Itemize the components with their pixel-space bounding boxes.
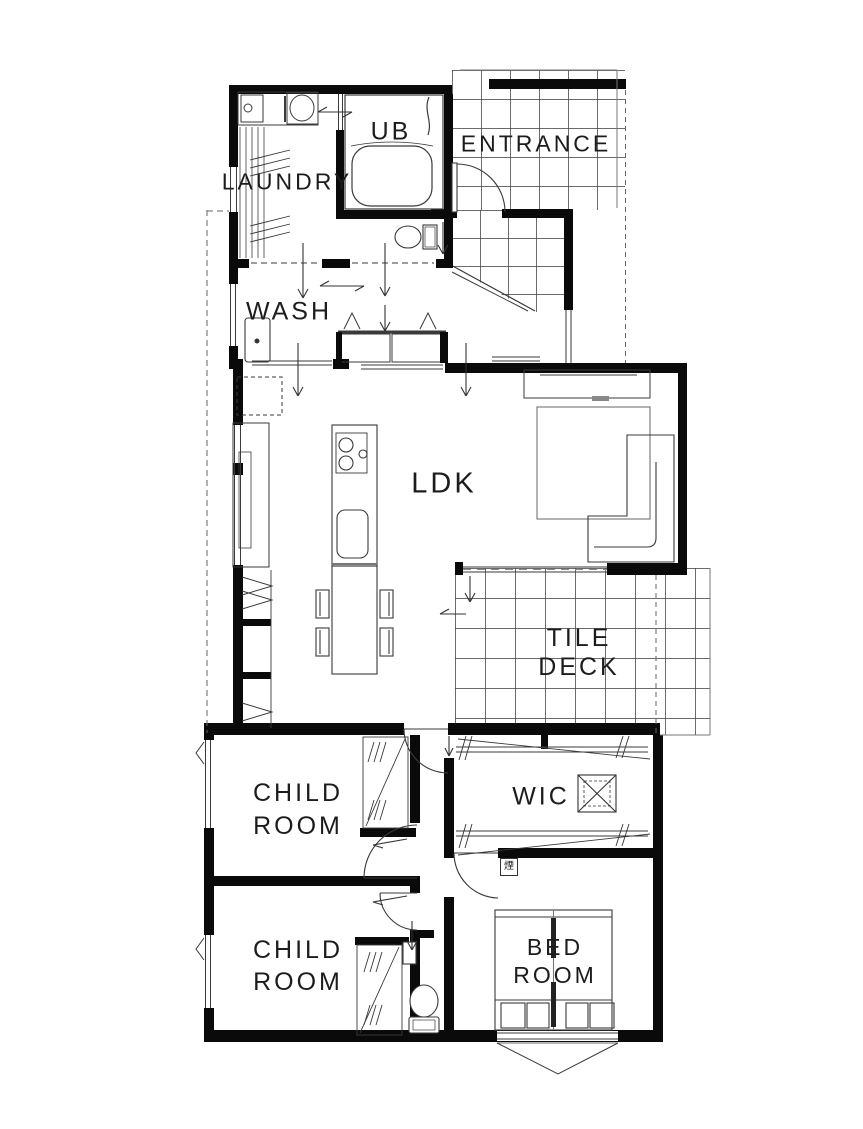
label-wic: WIC [512, 783, 570, 812]
dining-chairs [316, 590, 393, 656]
label-child1-line2: ROOM [253, 810, 343, 843]
label-laundry: LAUNDRY [222, 169, 353, 196]
label-tile-deck: TILE DECK [538, 624, 619, 682]
label-child2-line1: CHILD [253, 934, 343, 966]
label-wash: WASH [246, 298, 332, 327]
label-entrance: ENTRANCE [461, 131, 612, 158]
porch-step [497, 1043, 618, 1074]
plan-linework [0, 0, 863, 1129]
label-child2-line2: ROOM [253, 966, 343, 998]
washing-machine-icon [238, 92, 318, 125]
refrigerator-space [237, 377, 282, 415]
kitchen-sink-icon [337, 510, 368, 558]
label-tile-deck-line1: TILE [538, 624, 619, 653]
label-bed-room: BED ROOM [513, 933, 597, 989]
closet-icon-child1 [363, 737, 408, 828]
entrance-step [449, 264, 535, 312]
toilet-icon-lower [403, 942, 439, 1033]
attic-hatch-icon [578, 775, 616, 812]
floor-plan: LAUNDRY UB ENTRANCE WASH LDK TILE DECK C… [0, 0, 863, 1129]
label-child1-line1: CHILD [253, 777, 343, 810]
storage-shelves [242, 570, 272, 728]
sofa-icon [588, 435, 674, 562]
rug-icon [537, 407, 650, 519]
kitchen-island-icon [332, 425, 377, 566]
closet-icon-child2 [357, 945, 402, 1035]
smoke-detector-symbol: 煙 [500, 858, 518, 876]
label-tile-deck-line2: DECK [538, 653, 619, 682]
tv-board-icon [524, 370, 650, 401]
label-ldk: LDK [411, 468, 476, 501]
bathtub-icon [345, 95, 443, 209]
cooktop-icon [336, 433, 367, 473]
walls [204, 79, 687, 1042]
label-bed-line1: BED [513, 933, 597, 961]
label-ub: UB [371, 118, 412, 147]
hall-closet-icon [336, 313, 448, 363]
label-child-room-1: CHILD ROOM [253, 777, 343, 843]
dining-table-icon [316, 566, 393, 674]
label-child-room-2: CHILD ROOM [253, 934, 343, 998]
toilet-icon [395, 225, 437, 249]
label-bed-line2: ROOM [513, 961, 597, 989]
